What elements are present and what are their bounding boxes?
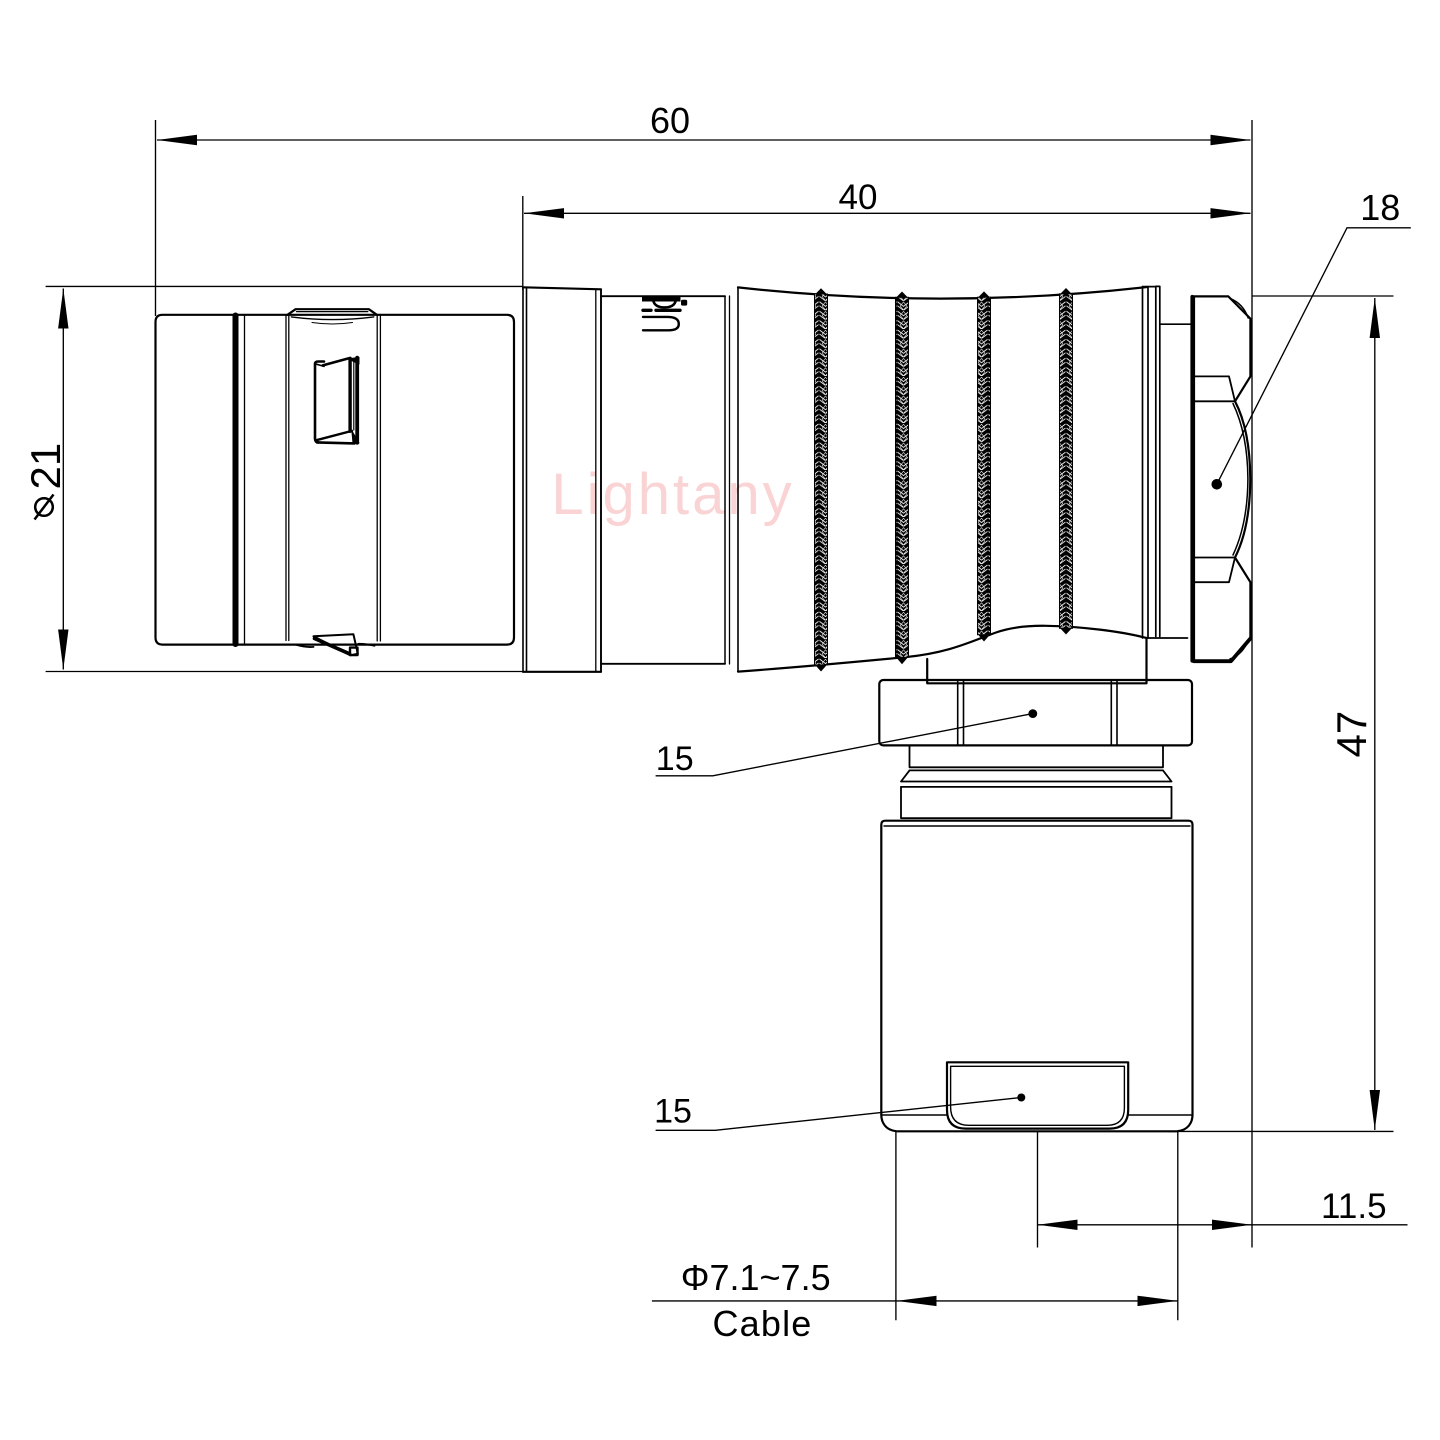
svg-text:15: 15 — [654, 1093, 692, 1131]
svg-text:11.5: 11.5 — [1321, 1187, 1387, 1226]
svg-text:60: 60 — [650, 100, 690, 141]
svg-text:15: 15 — [656, 740, 694, 778]
svg-text:18: 18 — [1360, 187, 1400, 228]
svg-text:Φ7.1~7.5: Φ7.1~7.5 — [681, 1257, 831, 1298]
svg-text:Cable: Cable — [712, 1303, 812, 1344]
svg-text:21: 21 — [22, 443, 69, 490]
svg-text:47: 47 — [1328, 711, 1375, 758]
svg-text:Lightany: Lightany — [551, 462, 794, 527]
svg-text:40: 40 — [839, 178, 878, 217]
